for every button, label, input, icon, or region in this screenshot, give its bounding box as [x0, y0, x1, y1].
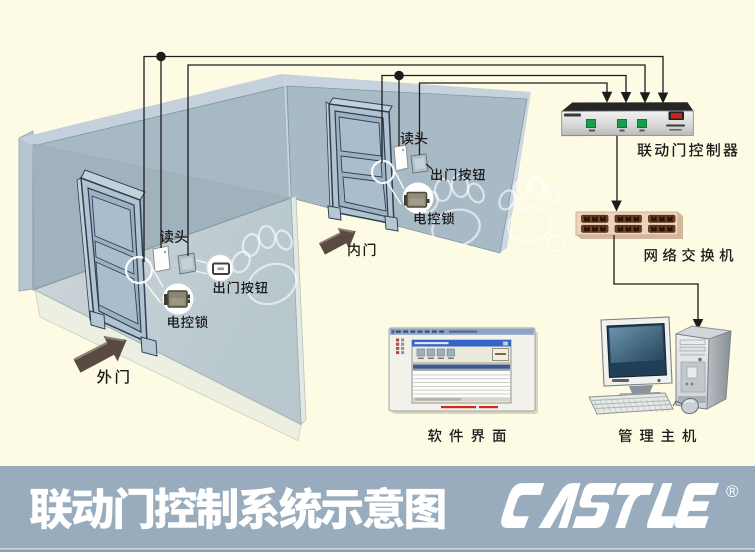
svg-text:®: ® — [726, 482, 739, 501]
